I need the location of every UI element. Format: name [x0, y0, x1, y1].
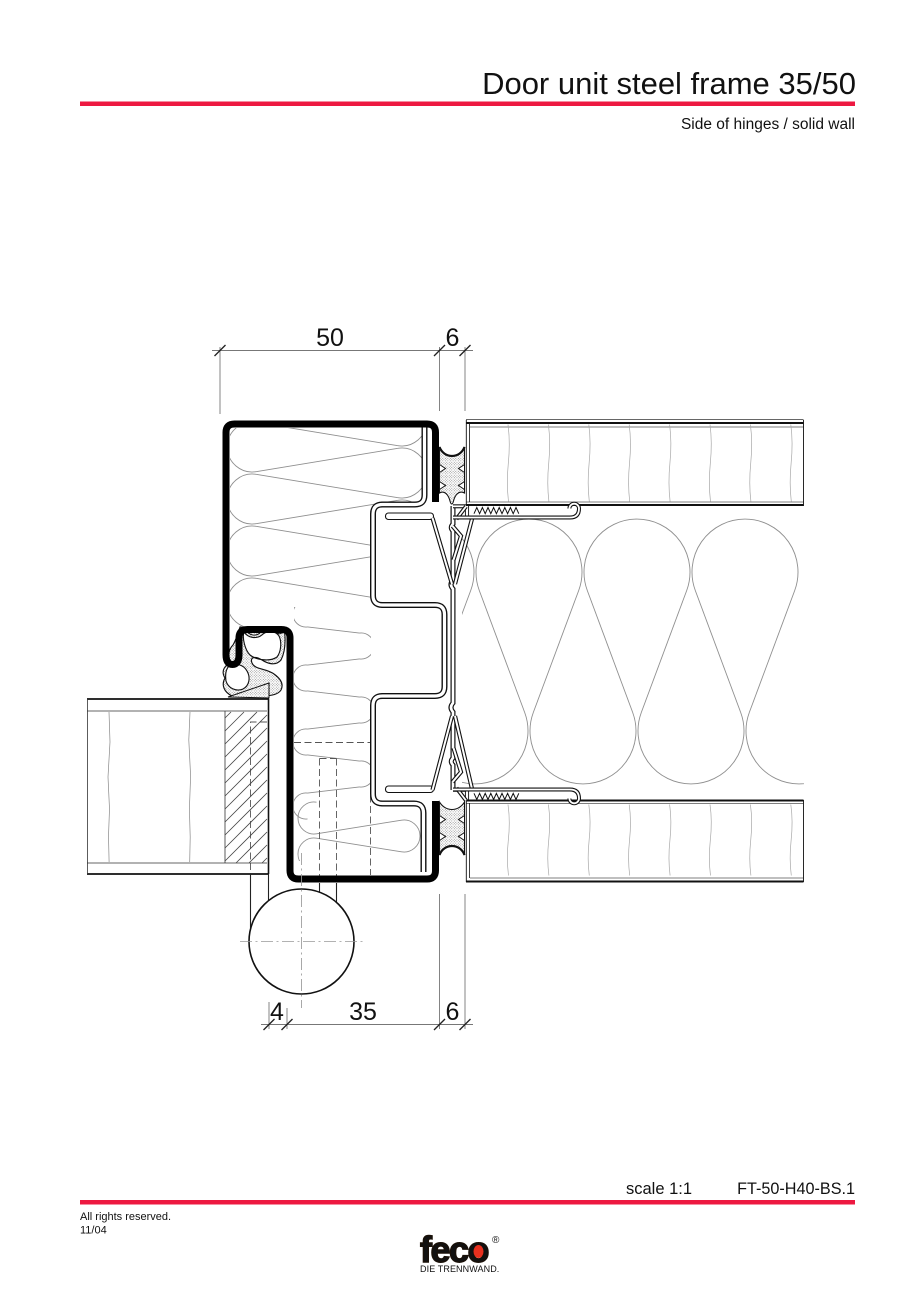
- svg-text:11/04: 11/04: [80, 1225, 107, 1237]
- svg-text:®: ®: [492, 1235, 500, 1246]
- svg-text:35: 35: [349, 998, 377, 1026]
- svg-text:Side of hinges / solid wall: Side of hinges / solid wall: [681, 116, 855, 133]
- svg-text:scale 1:1: scale 1:1: [626, 1180, 692, 1198]
- svg-text:Door unit steel frame 35/50: Door unit steel frame 35/50: [482, 66, 856, 101]
- svg-text:4: 4: [270, 998, 284, 1026]
- svg-text:FT-50-H40-BS.1: FT-50-H40-BS.1: [737, 1180, 855, 1198]
- svg-text:All rights reserved.: All rights reserved.: [80, 1211, 171, 1223]
- svg-text:6: 6: [446, 998, 460, 1026]
- svg-text:50: 50: [316, 324, 344, 352]
- svg-text:6: 6: [446, 324, 460, 352]
- svg-text:DIE TRENNWAND.: DIE TRENNWAND.: [420, 1264, 499, 1274]
